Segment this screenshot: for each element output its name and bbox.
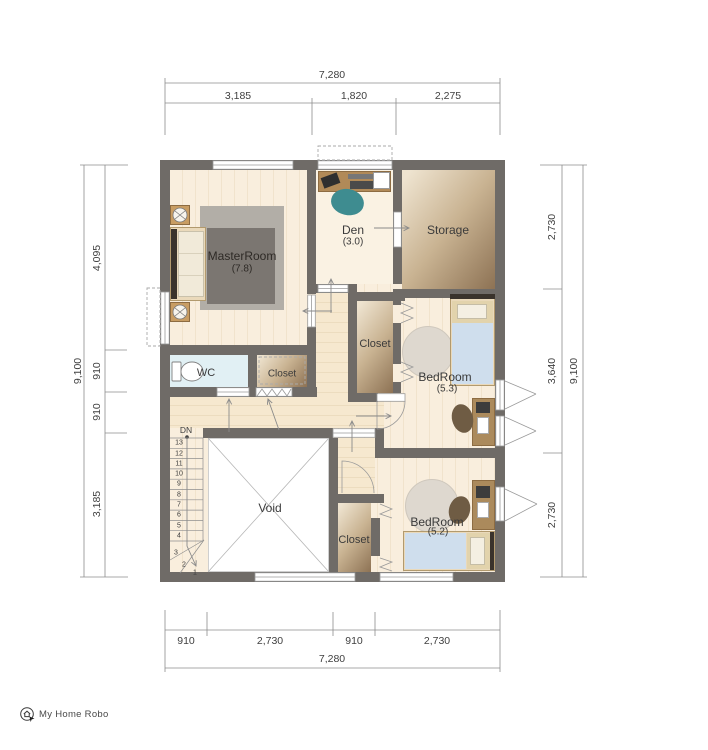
den-area: (3.0): [343, 237, 364, 248]
dim-right-seg-2: 3,640: [546, 358, 558, 384]
dim-left-overall: 9,100: [72, 358, 84, 384]
balcony-dashed-outline: [147, 146, 392, 384]
dim-right-seg-3: 2,730: [546, 502, 558, 528]
dim-bottom-seg-2: 2,730: [257, 635, 283, 647]
stair-step-number: 1: [193, 570, 197, 577]
stair-step-number: 8: [177, 491, 181, 498]
stair-step-number: 10: [175, 471, 183, 478]
brand-logo: My Home Robo: [19, 706, 109, 723]
master-room-label: MasterRoom: [208, 249, 277, 263]
dim-left-seg-1: 4,095: [91, 245, 103, 271]
home-robo-icon: [19, 706, 36, 723]
bedroom52-area: (5.2): [428, 527, 449, 538]
plant-icon: [173, 208, 187, 319]
dim-bottom-seg-4: 2,730: [424, 635, 450, 647]
dim-right-seg-1: 2,730: [546, 214, 558, 240]
wc-label: WC: [197, 367, 215, 379]
floor-plan-canvas: MasterRoom (7.8) Den (3.0) Storage WC Cl…: [0, 0, 708, 750]
dim-top-seg-3: 2,275: [435, 90, 461, 102]
storage-label: Storage: [427, 223, 469, 237]
dim-top-seg-1: 3,185: [225, 90, 251, 102]
dim-top-overall: 7,280: [319, 69, 345, 81]
stair-step-number: 6: [177, 512, 181, 519]
stair-step-number: 11: [175, 460, 182, 467]
brand-logo-text: My Home Robo: [39, 709, 109, 720]
dim-left-seg-2: 910: [91, 362, 103, 380]
bedroom52-closet-label: Closet: [338, 534, 369, 546]
stairs-dn-label: DN: [180, 425, 192, 435]
master-closet-label: Closet: [268, 369, 296, 380]
stair-down-path: [185, 435, 196, 566]
dim-right-overall: 9,100: [568, 358, 580, 384]
stair-step-number: 7: [177, 502, 181, 509]
stair-step-number: 4: [177, 532, 181, 539]
dim-left-seg-4: 3,185: [91, 491, 103, 517]
dim-bottom-overall: 7,280: [319, 653, 345, 665]
bedroom53-area: (5.3): [437, 384, 458, 395]
den-label: Den: [342, 223, 364, 237]
master-room-area: (7.8): [232, 264, 253, 275]
stair-step-number: 5: [177, 522, 181, 529]
dim-bottom-seg-1: 910: [177, 635, 195, 647]
stair-step-number: 13: [175, 440, 183, 447]
stair-step-number: 2: [182, 562, 186, 569]
bedroom53-closet-label: Closet: [359, 338, 390, 350]
stair-step-number: 3: [174, 550, 178, 557]
bedroom53-label: BedRoom: [418, 370, 471, 384]
stair-step-number: 9: [177, 481, 181, 488]
dim-top-seg-2: 1,820: [341, 90, 367, 102]
dim-left-seg-3: 910: [91, 403, 103, 421]
stair-step-number: 12: [175, 450, 183, 457]
void-label: Void: [258, 501, 281, 515]
dim-bottom-seg-3: 910: [345, 635, 363, 647]
